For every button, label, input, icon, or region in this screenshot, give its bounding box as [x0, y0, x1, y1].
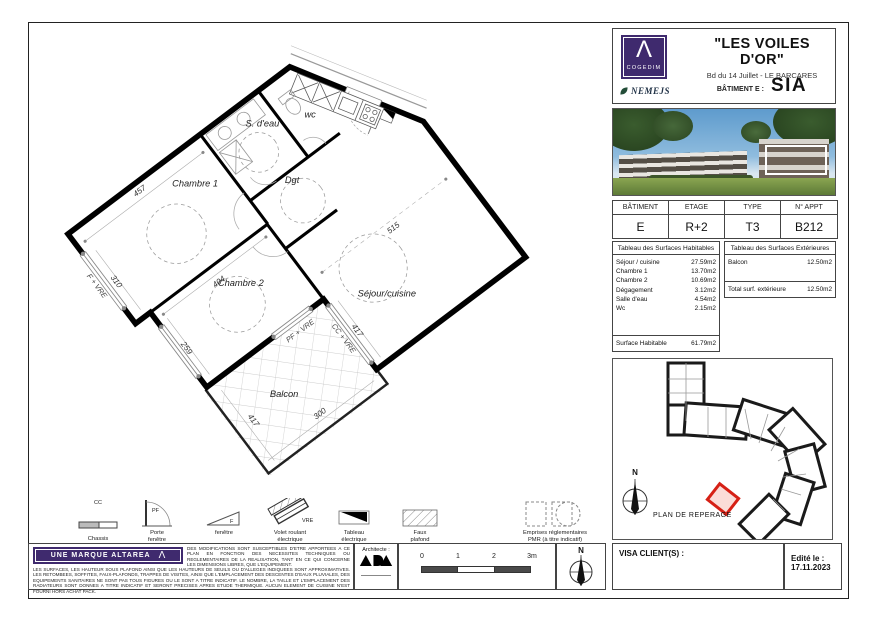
building-rendering	[612, 108, 836, 196]
sink-left	[216, 124, 234, 142]
reperage-label: PLAN DE REPERAGE	[653, 512, 732, 519]
dim-sejour-w: 515	[385, 220, 402, 236]
vre-icon: VRE	[264, 498, 316, 528]
lawn	[613, 178, 835, 195]
info-header-batiment: BÂTIMENT	[613, 201, 669, 215]
legend-label: Emprises réglementairesPMR (à titre indi…	[505, 530, 605, 544]
north-compass: N	[557, 544, 605, 589]
batiment-code: SIA	[771, 75, 807, 97]
project-title: "LES VOILES D'OR"	[693, 36, 831, 68]
legend-label: Volet roulantélectrique	[258, 530, 322, 544]
room-chambre2: Chambre 2	[218, 278, 265, 288]
row-name: Balcon	[728, 258, 748, 267]
f-icon: F	[205, 506, 243, 528]
table-row: Balcon12.50m2	[728, 258, 832, 267]
row-value: 27.59m2	[691, 258, 716, 267]
scale-tick-0: 0	[420, 553, 424, 560]
batiment-line: BÂTIMENT E : SIA	[693, 75, 831, 97]
dimension-dots	[83, 43, 448, 377]
legend-item-pmr: Emprises réglementairesPMR (à titre indi…	[505, 500, 605, 544]
ext-title: Tableau des Surfaces Extérieures	[725, 242, 835, 255]
total-name: Surface Habitable	[616, 340, 667, 347]
tree-left2	[653, 111, 693, 141]
scale-bar	[421, 566, 531, 573]
edited-block: Edité le : 17.11.2023	[784, 543, 842, 590]
visa-client-block: VISA CLIENT(S) :	[612, 543, 784, 590]
balcony-area	[203, 299, 389, 477]
row-value: 13.70m2	[691, 267, 716, 276]
cogedim-logo: Λ COGEDIM	[621, 35, 667, 79]
nemejs-wordmark: NEMEJS	[631, 86, 670, 96]
row-value: 12.50m2	[807, 258, 832, 267]
scale-tick-1: 1	[456, 553, 460, 560]
table-row: Salle d'eau4.54m2	[616, 295, 716, 304]
table-row: Dégagement3.12m2	[616, 286, 716, 295]
row-name: Salle d'eau	[616, 295, 647, 304]
room-sdeau: S. d'eau	[246, 118, 280, 128]
table-row: Chambre 113.70m2	[616, 267, 716, 276]
scale-bar-block: 0 1 2 3m	[398, 543, 556, 590]
total-value: 61.79m2	[691, 340, 716, 347]
info-header-type: TYPE	[725, 201, 781, 215]
visa-label: VISA CLIENT(S) :	[619, 549, 783, 558]
electrical-panel-icon	[336, 508, 372, 528]
legend-label: fenêtre	[196, 530, 252, 537]
disclaimer-2: LES SURFACES, LES HAUTEUR SOUS PLAFOND A…	[33, 567, 350, 594]
hab-title: Tableau des Surfaces Habitables	[613, 242, 719, 255]
table-row: Chambre 210.69m2	[616, 276, 716, 285]
hab-total-row: Surface Habitable61.79m2	[613, 335, 719, 351]
edited-date: 17.11.2023	[791, 563, 841, 572]
surfaces-exterieures-table: Tableau des Surfaces Extérieures Balcon1…	[724, 241, 836, 298]
info-value-etage: R+2	[669, 215, 725, 238]
altarea-banner: UNE MARQUE ALTAREA Λ	[33, 547, 183, 564]
table-row: Wc2.15m2	[616, 304, 716, 313]
pmr-icon	[520, 500, 590, 528]
reperage-map: N PLAN DE REPERAGE	[613, 359, 832, 539]
plan-sheet: 457 310 404 259 417 515 417 300 F + VRE …	[0, 0, 877, 619]
architect-underline	[361, 575, 391, 576]
row-name: Wc	[616, 304, 625, 313]
legend-item-vre: VRE Volet roulantélectrique	[258, 500, 322, 544]
legend-symbol-pf: PF	[152, 508, 160, 514]
row-name: Séjour / cuisine	[616, 258, 660, 267]
total-value: 12.50m2	[807, 286, 832, 293]
north-label: N	[578, 546, 584, 555]
highlighted-unit	[707, 484, 738, 515]
scale-tick-2: 2	[492, 553, 496, 560]
info-header-etage: ETAGE	[669, 201, 725, 215]
info-header-appt: N° APPT	[781, 201, 837, 215]
legend-symbol-vre: VRE	[302, 518, 314, 524]
room-dgt: Dgt	[285, 175, 300, 185]
cc-icon	[77, 516, 119, 534]
room-wc: wc	[304, 110, 316, 120]
unit-highlight-outline	[765, 145, 827, 175]
legend-item-pf: PF Portefenêtre	[132, 500, 182, 544]
cogedim-wordmark: COGEDIM	[621, 65, 667, 71]
legend-label: Fauxplafond	[392, 530, 448, 544]
total-name: Total surf. extérieure	[728, 286, 786, 293]
scale-tick-3: 3m	[527, 553, 537, 560]
faux-plafond-icon	[400, 508, 440, 528]
cogedim-glyph: Λ	[621, 35, 667, 65]
disclaimer-1: DES MODIFICATIONS SONT SUSCEPTIBLES D'ET…	[187, 546, 350, 568]
leaf-icon	[619, 85, 629, 97]
banner-text: UNE MARQUE ALTAREA	[51, 552, 151, 559]
row-value: 4.54m2	[695, 295, 716, 304]
legend-item-f: F fenêtre	[196, 500, 252, 537]
legend-item-tableau-electrique: Tableauélectrique	[326, 500, 382, 544]
architect-logo	[359, 553, 393, 568]
info-value-type: T3	[725, 215, 781, 238]
ext-total-row: Total surf. extérieure12.50m2	[725, 281, 835, 297]
project-title-block: "LES VOILES D'OR" Bd du 14 Juillet - LE …	[693, 36, 831, 80]
info-value-batiment: E	[613, 215, 669, 238]
row-name: Chambre 1	[616, 267, 648, 276]
floor-plan: 457 310 404 259 417 515 417 300 F + VRE …	[0, 0, 612, 543]
room-chambre1: Chambre 1	[172, 178, 218, 188]
architect-block: Architecte :	[354, 543, 398, 590]
window-chambre2	[158, 325, 201, 379]
legend-item-faux-plafond: Fauxplafond	[392, 500, 448, 544]
table-row: Séjour / cuisine27.59m2	[616, 258, 716, 267]
row-value: 2.15m2	[695, 304, 716, 313]
altarea-glyph: Λ	[159, 550, 166, 561]
legend-label: Portefenêtre	[132, 530, 182, 544]
info-value-appt: B212	[781, 215, 837, 238]
plan-de-reperage: N PLAN DE REPERAGE	[612, 358, 833, 540]
title-block: Λ COGEDIM NEMEJS "LES VOILES D'OR" Bd du…	[612, 28, 836, 104]
room-sejour: Séjour/cuisine	[358, 289, 416, 299]
edited-label: Edité le :	[791, 554, 841, 563]
disclaimer-block: UNE MARQUE ALTAREA Λ DES MODIFICATIONS S…	[28, 543, 354, 590]
batiment-label: BÂTIMENT E :	[717, 86, 764, 93]
north-compass-block: N	[556, 543, 606, 590]
room-balcon: Balcon	[270, 389, 298, 399]
apartment-info-table: BÂTIMENT ETAGE TYPE N° APPT E R+2 T3 B21…	[612, 200, 838, 239]
reperage-compass: N	[623, 468, 647, 515]
row-value: 10.69m2	[691, 276, 716, 285]
pf-icon: PF	[140, 498, 174, 528]
legend-label: Tableauélectrique	[326, 530, 382, 544]
nemejs-logo: NEMEJS	[619, 85, 670, 97]
row-name: Dégagement	[616, 286, 653, 295]
reperage-north-label: N	[632, 468, 638, 477]
row-name: Chambre 2	[616, 276, 648, 285]
surfaces-habitables-table: Tableau des Surfaces Habitables Séjour /…	[612, 241, 720, 352]
row-value: 3.12m2	[695, 286, 716, 295]
